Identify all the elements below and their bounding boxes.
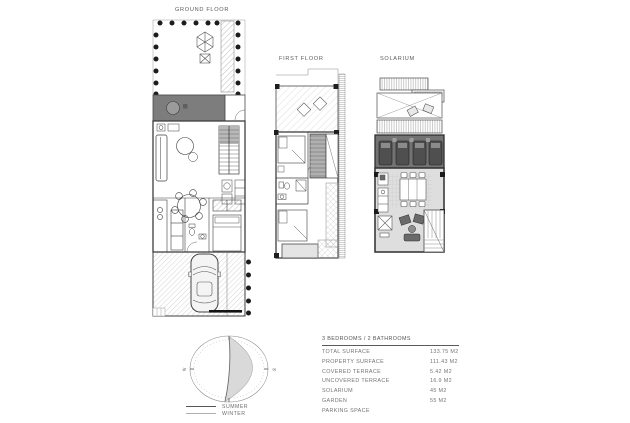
party-wall (339, 74, 345, 258)
outdoor-kitchen (378, 173, 388, 212)
first-floor-interior (274, 130, 339, 258)
row-label: GARDEN (322, 398, 347, 404)
summary-divider (322, 345, 459, 346)
ground-floor-title: GROUND FLOOR (175, 7, 229, 13)
row-label: PARKING SPACE (322, 408, 370, 414)
north-label: N (181, 367, 187, 372)
table-row: SOLARIUM 45 M2 (322, 388, 459, 398)
solarium-plan (372, 60, 450, 258)
curb-grid (153, 308, 165, 316)
stairwell-void (326, 183, 338, 247)
hedge-dots-driveway (246, 260, 251, 316)
row-value: 5.42 M2 (430, 369, 452, 375)
scale-bar (209, 310, 242, 313)
floorplan-sheet: GROUND FLOOR (0, 0, 630, 423)
first-floor-plan (274, 60, 346, 262)
row-value: 133.75 M2 (430, 349, 459, 355)
car (189, 254, 221, 312)
driveway (153, 252, 251, 316)
row-value: 16.9 M2 (430, 378, 452, 384)
outdoor-dining (400, 173, 426, 207)
table-row: TOTAL SURFACE 133.75 M2 (322, 349, 459, 359)
living-area (153, 121, 245, 252)
covered-terrace (153, 95, 245, 121)
upper-stairs (310, 134, 338, 178)
row-label: PROPERTY SURFACE (322, 359, 384, 365)
sun-deck (375, 135, 444, 168)
row-label: SOLARIUM (322, 388, 353, 394)
pergola (377, 78, 444, 133)
row-value: 45 M2 (430, 388, 447, 394)
summer-line (186, 406, 216, 407)
sun-path-diagram: N S (178, 328, 282, 410)
ground-floor-plan (147, 14, 253, 320)
winter-label: WINTER (222, 411, 245, 417)
row-label: TOTAL SURFACE (322, 349, 370, 355)
stairs (219, 126, 239, 174)
solarium-stairs (424, 210, 444, 252)
table-row: PROPERTY SURFACE 111.43 M2 (322, 359, 459, 369)
sun-legend: SUMMER WINTER (186, 403, 248, 417)
summer-label: SUMMER (222, 404, 248, 410)
summary-header: 3 BEDROOMS / 2 BATHROOMS (322, 336, 459, 342)
first-floor-terrace (275, 69, 339, 132)
table-row: UNCOVERED TERRACE 16.9 M2 (322, 378, 459, 388)
surface-summary-table: 3 BEDROOMS / 2 BATHROOMS TOTAL SURFACE 1… (322, 336, 459, 418)
table-row: GARDEN 55 M2 (322, 398, 459, 408)
south-label: S (271, 367, 277, 371)
row-value: 111.43 M2 (430, 359, 458, 365)
solarium-terrace (374, 168, 445, 252)
table-row: PARKING SPACE (322, 408, 459, 418)
tree-icon (197, 32, 213, 63)
row-value: 55 M2 (430, 398, 447, 404)
garden (153, 20, 245, 97)
winter-line (186, 413, 216, 414)
row-label: COVERED TERRACE (322, 369, 381, 375)
row-label: UNCOVERED TERRACE (322, 378, 390, 384)
terrace-table (167, 102, 180, 115)
table-row: COVERED TERRACE 5.42 M2 (322, 369, 459, 379)
